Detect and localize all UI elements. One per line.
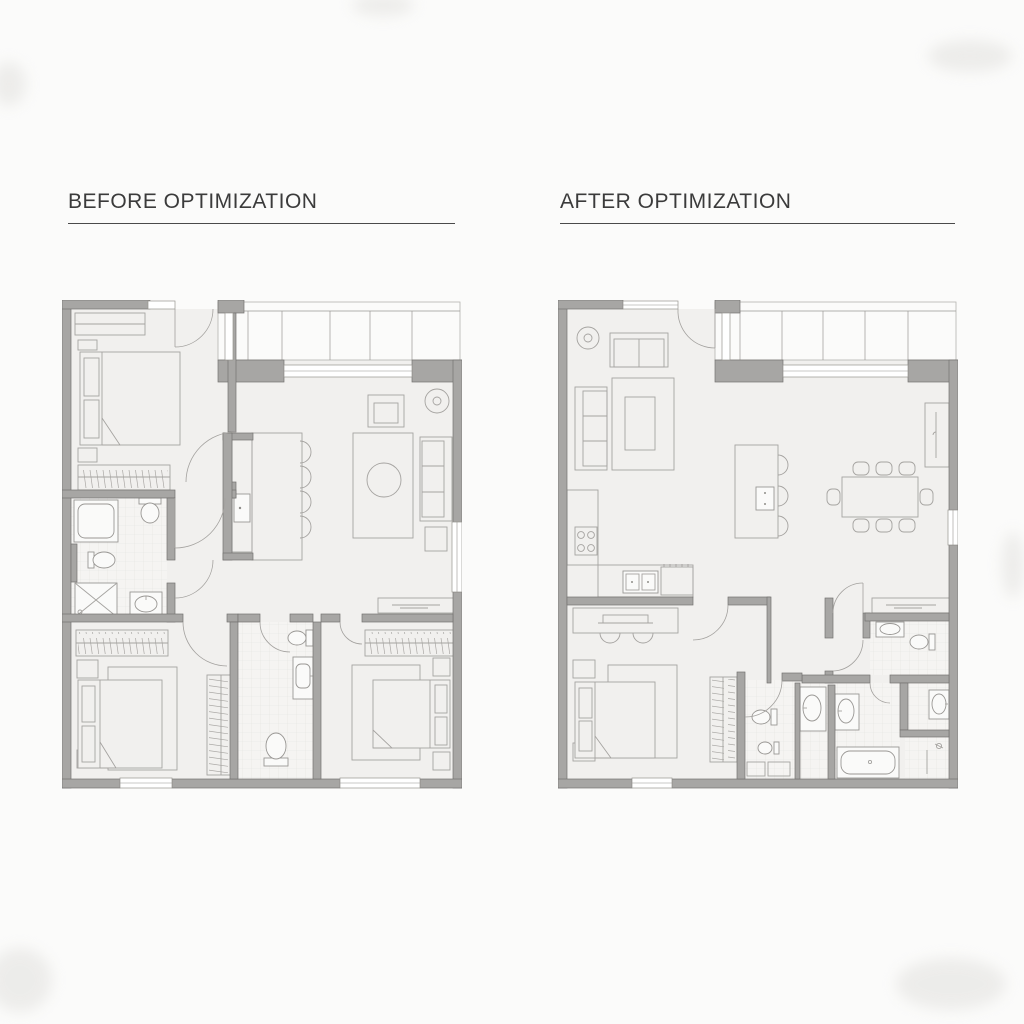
bidet <box>88 552 115 568</box>
dining-table <box>842 477 918 517</box>
balcony-divider-window <box>225 313 233 360</box>
shower <box>75 583 117 617</box>
floor-plan-comparison-sheet: BEFORE OPTIMIZATION AFTER OPTIMIZATION <box>0 0 1024 1024</box>
sink <box>876 622 904 637</box>
balcony-divider-window <box>722 313 730 360</box>
walk-in-wardrobe <box>710 677 737 762</box>
toilet <box>910 634 935 650</box>
wardrobe <box>365 630 455 656</box>
duct <box>71 544 77 582</box>
after-floor-plan <box>558 300 958 790</box>
vanity-sink <box>800 687 826 731</box>
after-title-text: AFTER OPTIMIZATION <box>560 190 791 213</box>
balcony <box>218 302 460 360</box>
paper-smudge <box>352 0 414 16</box>
thin-partition <box>767 597 771 683</box>
double-bed <box>373 680 450 748</box>
double-bed <box>80 352 180 445</box>
wardrobe <box>76 630 168 656</box>
sink <box>130 592 162 616</box>
before-title: BEFORE OPTIMIZATION <box>68 190 455 224</box>
double-bed <box>575 682 655 758</box>
bathtub <box>74 500 118 542</box>
after-title: AFTER OPTIMIZATION <box>560 190 955 224</box>
balcony <box>715 302 956 360</box>
bidet <box>758 742 779 754</box>
sidelight-window <box>148 301 175 309</box>
before-floor-plan <box>62 300 462 790</box>
island-wall <box>223 553 253 560</box>
paper-smudge <box>0 62 26 106</box>
vanity-sink <box>293 657 313 699</box>
before-title-text: BEFORE OPTIMIZATION <box>68 190 317 213</box>
vanity-sink <box>835 694 859 730</box>
double-sink <box>623 571 658 593</box>
paper-smudge <box>1002 532 1024 598</box>
paper-smudge <box>0 948 52 1012</box>
double-bed <box>78 680 162 768</box>
bathtub <box>837 747 899 778</box>
island-sink <box>234 494 250 522</box>
wall-hung-toilet <box>288 630 313 646</box>
paper-smudge <box>896 958 1006 1010</box>
island-wall <box>223 433 232 560</box>
paper-smudge <box>928 40 1012 72</box>
sink <box>929 690 949 719</box>
wardrobe <box>78 465 170 490</box>
